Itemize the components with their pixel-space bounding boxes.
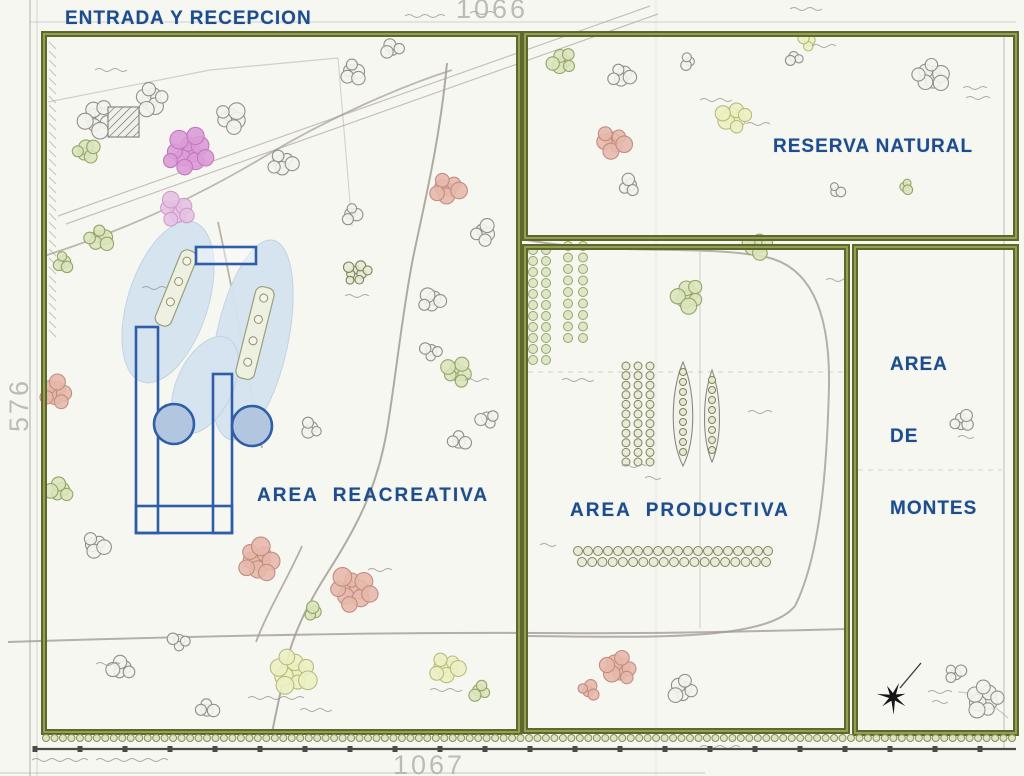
scale-bar-tick bbox=[213, 746, 218, 752]
tree-row bbox=[646, 362, 654, 466]
scale-bar-tick bbox=[933, 746, 938, 752]
zone-label-montes-line2: DE bbox=[890, 425, 977, 449]
scale-bar-tick bbox=[843, 746, 848, 752]
scale-bar-tick bbox=[618, 746, 623, 752]
zone-label-montes-line3: MONTES bbox=[890, 497, 977, 521]
scale-bar-tick bbox=[798, 746, 803, 752]
tree-row bbox=[622, 362, 630, 466]
scale-bar-tick bbox=[303, 746, 308, 752]
scale-bar-tick bbox=[123, 746, 128, 752]
facility-circle bbox=[154, 404, 194, 444]
zone-label-montes: AREA DE MONTES bbox=[890, 305, 977, 569]
tree-row bbox=[564, 242, 573, 343]
scale-bar-tick bbox=[708, 746, 713, 752]
scale-bar-tick bbox=[573, 746, 578, 752]
tree-row bbox=[529, 246, 538, 365]
scale-bar-tick bbox=[663, 746, 668, 752]
scale-bar-tick bbox=[78, 746, 83, 752]
sheet-number-left: 576 bbox=[4, 378, 35, 432]
zone-label-entrada: ENTRADA Y RECEPCION bbox=[65, 8, 312, 30]
scale-bar-tick bbox=[753, 746, 758, 752]
tree-row bbox=[542, 246, 551, 365]
scale-bar-tick bbox=[258, 746, 263, 752]
building bbox=[108, 107, 139, 137]
facility-circle bbox=[232, 406, 272, 446]
scale-bar-tick bbox=[33, 746, 38, 752]
site-plan-map bbox=[0, 0, 1024, 776]
scale-bar-tick bbox=[168, 746, 173, 752]
scale-bar-tick bbox=[348, 746, 353, 752]
paper-background bbox=[0, 0, 1024, 776]
zone-label-reserva: RESERVA NATURAL bbox=[773, 136, 973, 158]
zone-label-montes-line1: AREA bbox=[890, 353, 977, 377]
scale-bar-tick bbox=[528, 746, 533, 752]
site-plan: ENTRADA Y RECEPCION RESERVA NATURAL AREA… bbox=[0, 0, 1024, 776]
sheet-number-top: 1066 bbox=[456, 0, 528, 25]
tree-row bbox=[634, 362, 642, 466]
facility-rect bbox=[196, 247, 256, 264]
scale-bar-tick bbox=[978, 746, 983, 752]
scale-bar-tick bbox=[483, 746, 488, 752]
tree-row bbox=[579, 242, 588, 343]
tree-row bbox=[43, 735, 1016, 742]
zone-label-recreativa: AREA REACREATIVA bbox=[257, 485, 489, 507]
zone-label-productiva: AREA PRODUCTIVA bbox=[570, 500, 790, 522]
sheet-number-bottom: 1067 bbox=[393, 750, 465, 776]
scale-bar-tick bbox=[888, 746, 893, 752]
